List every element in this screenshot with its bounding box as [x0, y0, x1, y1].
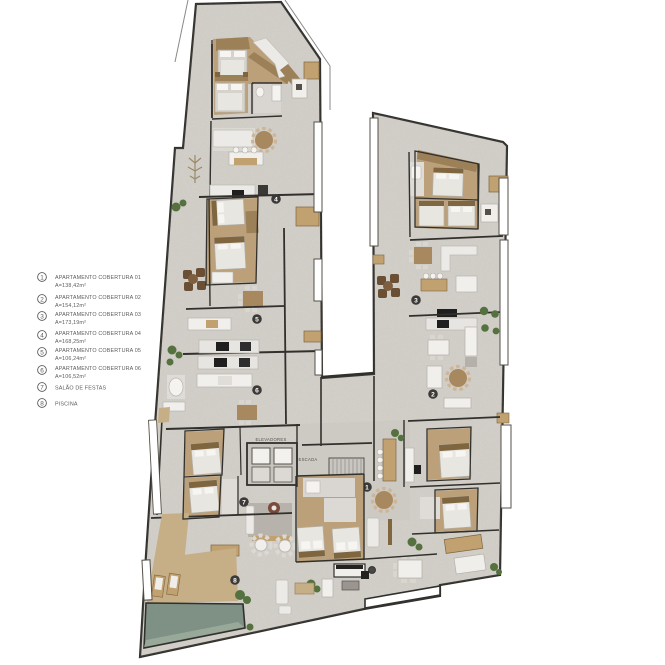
- svg-text:1: 1: [365, 484, 369, 491]
- svg-text:6: 6: [255, 387, 259, 394]
- svg-text:APARTAMENTO COBERTURA 06: APARTAMENTO COBERTURA 06: [55, 366, 141, 372]
- svg-text:A=106,52m²: A=106,52m²: [55, 374, 86, 380]
- svg-text:2: 2: [431, 391, 435, 398]
- svg-text:SALÃO DE FESTAS: SALÃO DE FESTAS: [55, 385, 107, 392]
- svg-text:ELEVADORES: ELEVADORES: [255, 437, 286, 442]
- svg-text:APARTAMENTO COBERTURA 03: APARTAMENTO COBERTURA 03: [55, 312, 141, 318]
- svg-text:2: 2: [40, 297, 44, 304]
- svg-text:5: 5: [255, 316, 259, 323]
- svg-text:APARTAMENTO COBERTURA 01: APARTAMENTO COBERTURA 01: [55, 275, 141, 281]
- svg-text:A=154,12m²: A=154,12m²: [55, 303, 86, 309]
- svg-text:APARTAMENTO COBERTURA 02: APARTAMENTO COBERTURA 02: [55, 295, 141, 301]
- svg-text:A=106,24m²: A=106,24m²: [55, 356, 86, 362]
- svg-text:4: 4: [40, 333, 44, 340]
- svg-text:3: 3: [414, 297, 418, 304]
- svg-text:ESCADA: ESCADA: [298, 457, 317, 462]
- svg-text:PISCINA: PISCINA: [55, 402, 78, 408]
- svg-text:4: 4: [274, 196, 278, 203]
- svg-text:APARTAMENTO COBERTURA 05: APARTAMENTO COBERTURA 05: [55, 348, 141, 354]
- svg-text:A=173,19m²: A=173,19m²: [55, 320, 86, 326]
- svg-text:8: 8: [40, 401, 44, 408]
- svg-text:6: 6: [40, 368, 44, 375]
- svg-text:7: 7: [40, 385, 44, 392]
- svg-text:A=168,25m²: A=168,25m²: [55, 339, 86, 345]
- svg-text:5: 5: [40, 350, 44, 357]
- svg-text:8: 8: [233, 577, 237, 584]
- svg-text:7: 7: [242, 499, 246, 506]
- svg-text:A=138,42m²: A=138,42m²: [55, 283, 86, 289]
- svg-text:1: 1: [40, 275, 44, 282]
- svg-text:3: 3: [40, 314, 44, 321]
- svg-text:APARTAMENTO COBERTURA 04: APARTAMENTO COBERTURA 04: [55, 331, 141, 337]
